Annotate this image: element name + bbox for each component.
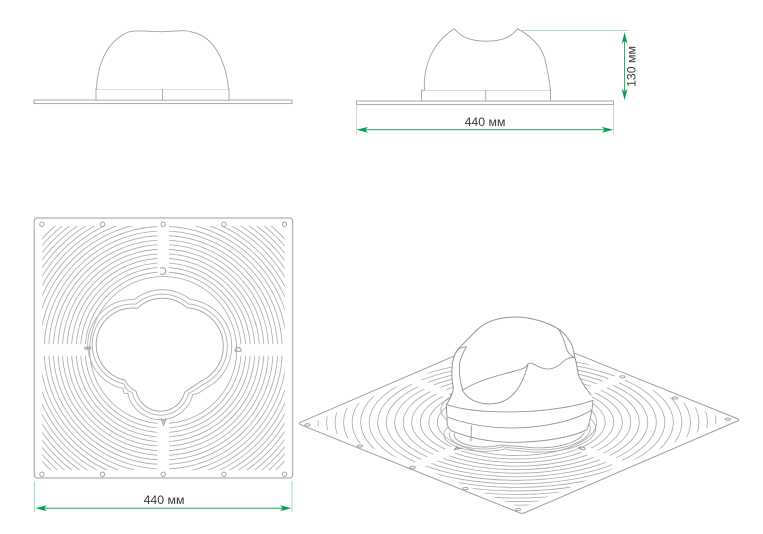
svg-text:440 мм: 440 мм [144, 493, 185, 507]
svg-text:440 мм: 440 мм [465, 115, 506, 129]
svg-text:130 мм: 130 мм [625, 46, 639, 87]
